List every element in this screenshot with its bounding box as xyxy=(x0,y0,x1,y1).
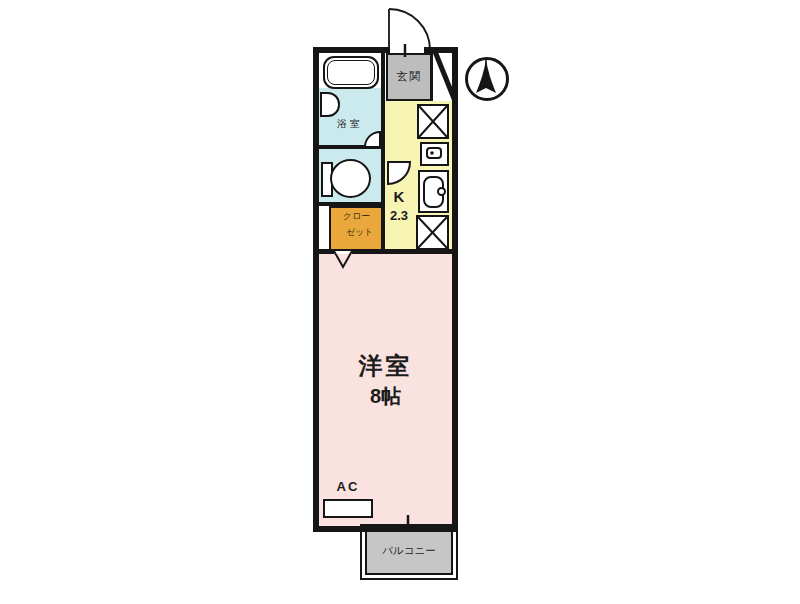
kitchen-label: K xyxy=(386,189,412,206)
floorplan-canvas: 玄関 浴室 クロー ゼット K 2.3 洋室 8帖 AC バルコニー xyxy=(0,0,800,604)
main-room-size-label: 8帖 xyxy=(319,385,452,407)
bathroom-label: 浴室 xyxy=(319,118,381,129)
balcony-label: バルコニー xyxy=(365,545,453,557)
wall-room-top-left xyxy=(313,249,334,254)
closet-label-line1: クロー xyxy=(331,212,382,222)
wall-kitchen-divider xyxy=(381,53,385,254)
bathtub-inner-line xyxy=(327,60,375,85)
entrance-label: 玄関 xyxy=(386,70,433,82)
sink-faucet-icon xyxy=(437,187,446,196)
compass-north-icon xyxy=(467,59,508,100)
wall-bath-toilet xyxy=(319,145,381,149)
wall-bottom xyxy=(313,526,458,532)
stove-box xyxy=(420,142,449,166)
refrigerator-space xyxy=(416,215,449,250)
closet-label-line2: ゼット xyxy=(334,228,385,238)
ac-unit-box xyxy=(323,499,373,518)
washing-machine-space xyxy=(417,104,449,139)
main-room-label: 洋室 xyxy=(319,353,452,379)
kitchen-size-label: 2.3 xyxy=(384,209,414,223)
wall-right xyxy=(452,47,458,532)
ac-label: AC xyxy=(325,480,371,494)
wall-toilet-closet xyxy=(319,202,385,206)
wall-top-left-segment xyxy=(313,47,390,53)
entrance-door-arc xyxy=(389,9,430,50)
toilet-bowl-icon xyxy=(330,159,371,198)
wall-room-top-right xyxy=(352,249,458,254)
